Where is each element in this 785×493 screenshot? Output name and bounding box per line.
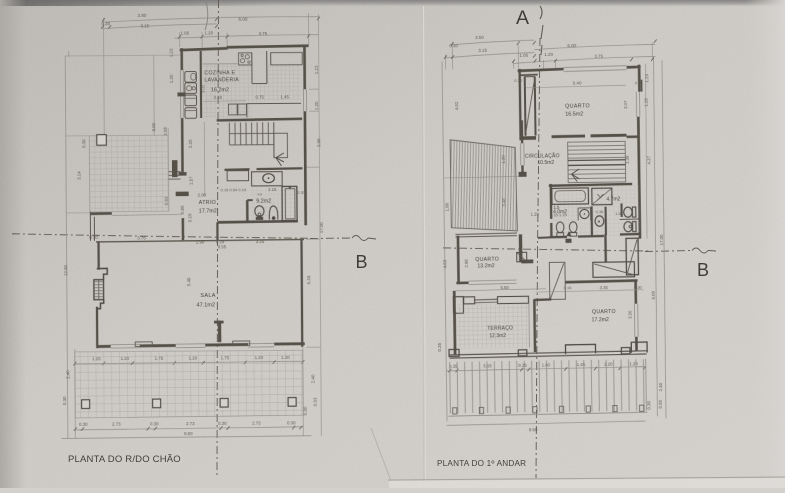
svg-text:1.20: 1.20 xyxy=(544,52,553,57)
svg-text:10.5m2: 10.5m2 xyxy=(537,160,554,166)
svg-text:17.00: 17.00 xyxy=(659,234,664,246)
svg-text:1.45: 1.45 xyxy=(280,94,289,99)
svg-text:2.20: 2.20 xyxy=(188,139,193,148)
svg-text:0.30: 0.30 xyxy=(514,78,523,83)
svg-text:+0: +0 xyxy=(257,192,262,197)
svg-text:0.15 0.84 0.15: 0.15 0.84 0.15 xyxy=(221,187,247,192)
svg-text:QUARTO: QUARTO xyxy=(592,309,616,315)
svg-text:3.75: 3.75 xyxy=(259,31,268,36)
svg-text:3.18: 3.18 xyxy=(213,95,222,100)
svg-text:1.05: 1.05 xyxy=(181,31,190,36)
svg-text:B: B xyxy=(697,260,709,280)
svg-text:1.57: 1.57 xyxy=(189,176,194,185)
svg-text:3.98: 3.98 xyxy=(316,138,321,147)
svg-text:2.73: 2.73 xyxy=(186,421,195,426)
svg-text:TERRAÇO: TERRAÇO xyxy=(487,325,513,331)
svg-text:0.30: 0.30 xyxy=(150,421,159,426)
svg-text:QUARTO: QUARTO xyxy=(475,257,499,263)
svg-text:47.1m2: 47.1m2 xyxy=(196,302,215,308)
svg-text:0.15: 0.15 xyxy=(187,213,192,222)
svg-text:3.75: 3.75 xyxy=(594,54,603,59)
svg-text:0.30: 0.30 xyxy=(449,43,458,48)
svg-text:17.2m2: 17.2m2 xyxy=(592,317,609,323)
svg-text:13.2m2: 13.2m2 xyxy=(477,263,494,269)
svg-text:QUARTO: QUARTO xyxy=(565,103,590,109)
svg-text:PLANTA DO 1º ANDAR: PLANTA DO 1º ANDAR xyxy=(437,459,526,468)
svg-text:0.35: 0.35 xyxy=(437,342,442,351)
svg-text:6.00: 6.00 xyxy=(567,43,576,48)
svg-text:3.14: 3.14 xyxy=(77,171,82,180)
svg-text:3.48: 3.48 xyxy=(501,198,506,207)
svg-text:4.7m2: 4.7m2 xyxy=(606,196,620,202)
svg-text:12.50: 12.50 xyxy=(63,264,68,276)
svg-text:3.15: 3.15 xyxy=(140,23,149,28)
svg-text:3.80: 3.80 xyxy=(137,13,146,18)
svg-text:9.50: 9.50 xyxy=(184,431,193,436)
svg-text:16.2m2: 16.2m2 xyxy=(211,87,229,93)
svg-text:1.20: 1.20 xyxy=(169,74,174,83)
svg-text:ATRIO: ATRIO xyxy=(199,200,217,206)
svg-text:0.30: 0.30 xyxy=(297,190,306,195)
svg-text:2.40: 2.40 xyxy=(658,382,663,391)
svg-text:2.39: 2.39 xyxy=(625,155,630,164)
svg-text:0.15 1.25: 0.15 1.25 xyxy=(550,212,568,217)
svg-text:PLANTA DO R/DO CHÃO: PLANTA DO R/DO CHÃO xyxy=(68,454,181,465)
svg-text:0.50: 0.50 xyxy=(658,399,663,408)
svg-text:0.55: 0.55 xyxy=(218,244,227,249)
svg-text:5.40: 5.40 xyxy=(186,277,191,286)
svg-text:17.7m2: 17.7m2 xyxy=(199,208,217,214)
svg-text:2.73: 2.73 xyxy=(252,421,261,426)
svg-text:0.30: 0.30 xyxy=(634,285,643,290)
svg-text:1.86: 1.86 xyxy=(444,202,449,211)
svg-text:0.35: 0.35 xyxy=(596,209,605,214)
svg-text:16.5m2: 16.5m2 xyxy=(565,111,583,117)
svg-text:0.30: 0.30 xyxy=(218,421,227,426)
svg-text:0.30: 0.30 xyxy=(101,21,110,26)
svg-text:4.37: 4.37 xyxy=(646,155,651,164)
svg-text:3.07: 3.07 xyxy=(623,100,628,109)
svg-text:6.00: 6.00 xyxy=(238,17,247,22)
svg-text:1.05: 1.05 xyxy=(519,53,528,58)
svg-text:5.40: 5.40 xyxy=(573,80,582,85)
svg-text:4.02: 4.02 xyxy=(454,101,459,110)
svg-text:9.2m2: 9.2m2 xyxy=(256,199,271,205)
svg-text:2.98: 2.98 xyxy=(464,259,469,268)
svg-text:CIRCULAÇÃO: CIRCULAÇÃO xyxy=(525,152,560,159)
svg-text:2.73: 2.73 xyxy=(112,422,121,427)
svg-text:A: A xyxy=(516,7,529,29)
svg-text:0.33: 0.33 xyxy=(313,397,318,406)
svg-text:3.56: 3.56 xyxy=(627,310,632,319)
svg-text:1.20: 1.20 xyxy=(531,212,540,217)
svg-text:6.00: 6.00 xyxy=(651,290,656,299)
svg-text:3.50: 3.50 xyxy=(475,35,484,40)
svg-text:2.16: 2.16 xyxy=(268,187,277,192)
svg-text:0.30: 0.30 xyxy=(646,400,651,409)
svg-text:1.20: 1.20 xyxy=(644,97,649,106)
svg-text:2.40: 2.40 xyxy=(310,374,315,383)
svg-text:6.39: 6.39 xyxy=(306,275,311,284)
svg-text:2.00: 2.00 xyxy=(198,192,207,197)
svg-text:1.23: 1.23 xyxy=(314,65,319,74)
svg-text:0.30: 0.30 xyxy=(62,396,67,405)
svg-text:3.35: 3.35 xyxy=(600,285,609,290)
svg-text:1.23: 1.23 xyxy=(169,48,174,57)
svg-text:0.30: 0.30 xyxy=(79,422,88,427)
svg-text:0.15: 0.15 xyxy=(564,285,573,290)
svg-text:0.86: 0.86 xyxy=(180,205,185,214)
svg-text:COZINHA E: COZINHA E xyxy=(204,70,235,76)
svg-text:3.76: 3.76 xyxy=(137,235,146,240)
svg-text:17.00: 17.00 xyxy=(319,222,324,234)
svg-text:2.40: 2.40 xyxy=(65,370,70,379)
svg-text:SALA: SALA xyxy=(200,293,215,299)
svg-text:1.20: 1.20 xyxy=(205,30,214,35)
svg-text:0.30: 0.30 xyxy=(81,139,86,148)
svg-text:1.23: 1.23 xyxy=(644,73,649,82)
svg-text:B: B xyxy=(356,252,368,272)
svg-text:LAVANDERIA: LAVANDERIA xyxy=(204,77,239,83)
svg-text:3.15: 3.15 xyxy=(478,48,487,53)
svg-text:1.20: 1.20 xyxy=(501,155,506,164)
svg-text:4.63: 4.63 xyxy=(442,259,447,268)
svg-text:0.30: 0.30 xyxy=(287,420,296,425)
svg-text:1.20: 1.20 xyxy=(314,101,319,110)
svg-text:3.58: 3.58 xyxy=(163,127,168,136)
svg-text:8.00: 8.00 xyxy=(151,122,156,131)
svg-text:9.50: 9.50 xyxy=(529,427,538,432)
svg-text:12.3m2: 12.3m2 xyxy=(489,333,506,339)
svg-text:0.75: 0.75 xyxy=(255,95,264,100)
